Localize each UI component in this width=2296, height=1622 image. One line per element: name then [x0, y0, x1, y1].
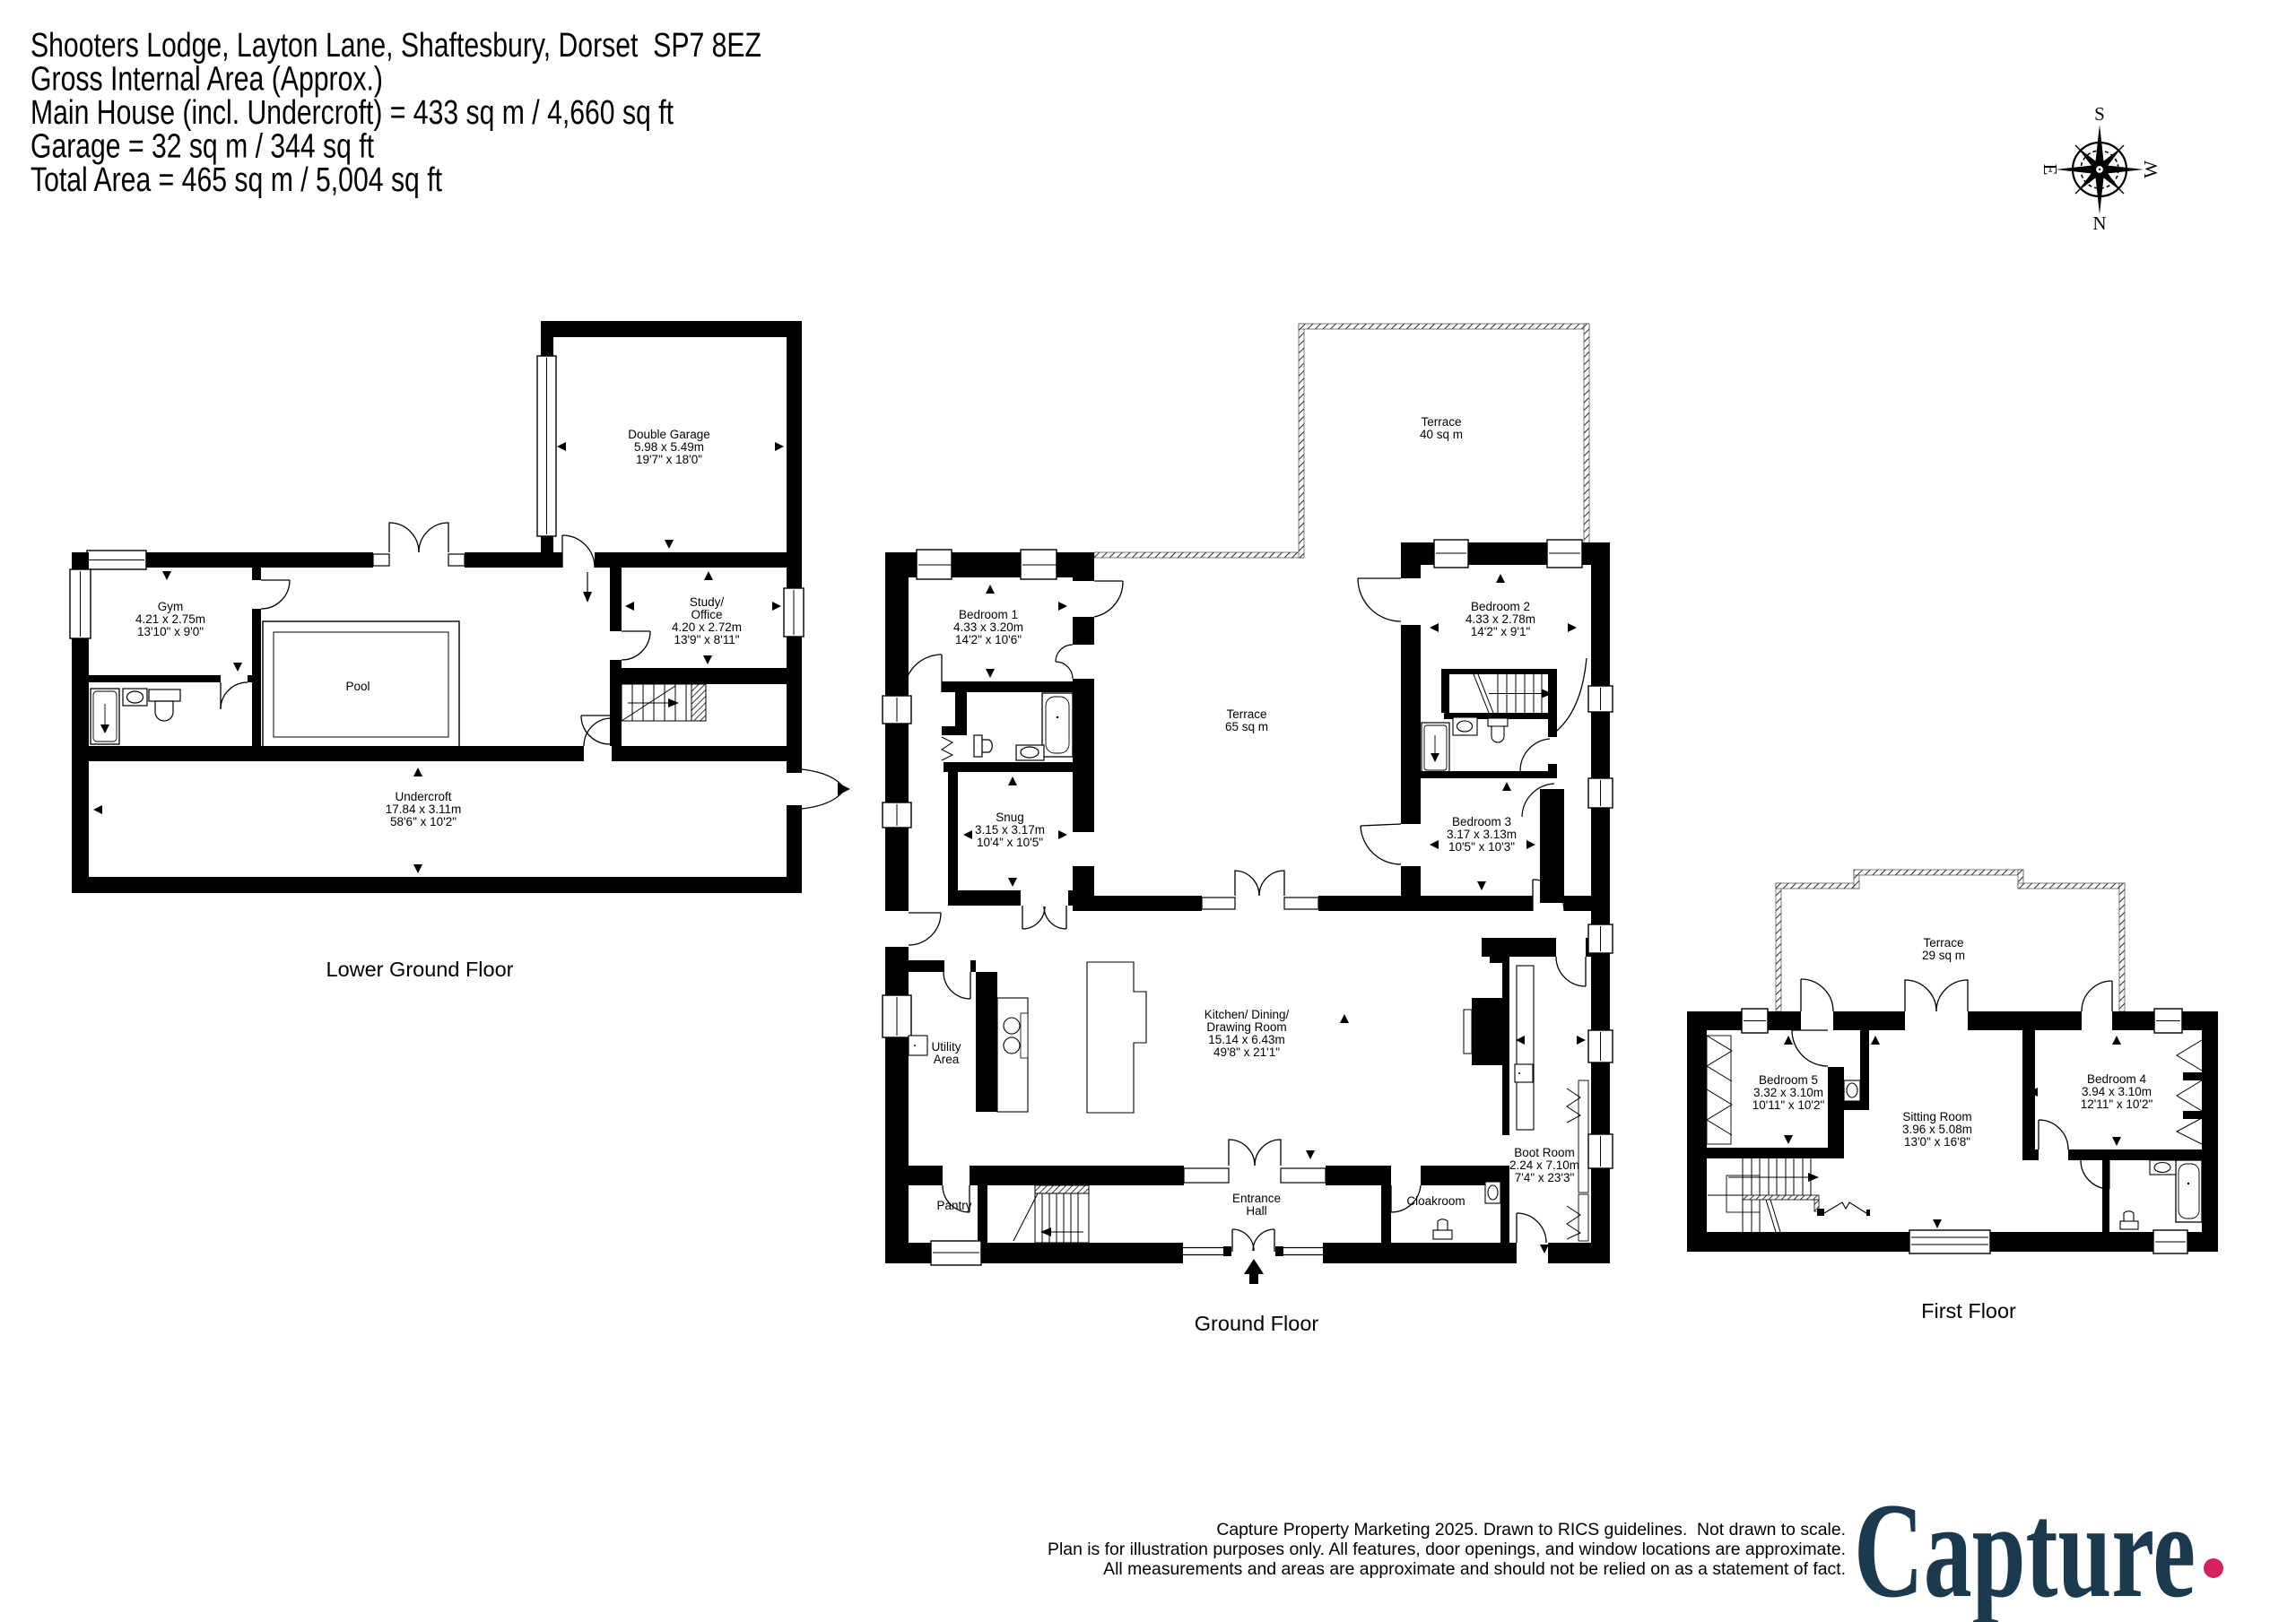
svg-text:14'2" x 10'6": 14'2" x 10'6" — [955, 633, 1022, 646]
svg-text:Capture Property Marketing 202: Capture Property Marketing 2025. Drawn t… — [1216, 1520, 1846, 1540]
svg-text:Drawing Room: Drawing Room — [1206, 1020, 1286, 1034]
svg-text:3.17 x 3.13m: 3.17 x 3.13m — [1447, 828, 1517, 841]
svg-text:Double Garage: Double Garage — [628, 428, 710, 441]
svg-text:Hall: Hall — [1246, 1204, 1266, 1218]
svg-text:13'0" x 16'8": 13'0" x 16'8" — [1904, 1135, 1970, 1149]
svg-text:15.14 x 6.43m: 15.14 x 6.43m — [1208, 1033, 1285, 1046]
svg-text:All measurements and areas are: All measurements and areas are approxima… — [1103, 1559, 1846, 1579]
svg-text:N: N — [2092, 213, 2106, 234]
svg-text:Pool: Pool — [345, 680, 370, 693]
svg-text:Bedroom 4: Bedroom 4 — [2087, 1072, 2147, 1086]
svg-text:3.96 x 5.08m: 3.96 x 5.08m — [1902, 1123, 1972, 1136]
svg-text:Ground Floor: Ground Floor — [1195, 1312, 1319, 1335]
svg-text:Utility: Utility — [932, 1040, 961, 1054]
svg-text:Bedroom 2: Bedroom 2 — [1471, 600, 1530, 613]
svg-text:14'2" x 9'1": 14'2" x 9'1" — [1471, 625, 1531, 638]
svg-text:Sitting Room: Sitting Room — [1902, 1110, 1971, 1123]
svg-text:W: W — [2140, 160, 2161, 178]
svg-text:Lower Ground Floor: Lower Ground Floor — [326, 958, 514, 981]
svg-text:10'11" x 10'2": 10'11" x 10'2" — [1752, 1098, 1825, 1112]
svg-text:Kitchen/ Dining/: Kitchen/ Dining/ — [1205, 1008, 1290, 1021]
svg-text:4.33 x 3.20m: 4.33 x 3.20m — [953, 620, 1023, 634]
svg-text:4.20 x 2.72m: 4.20 x 2.72m — [672, 620, 742, 634]
svg-text:5.98 x 5.49m: 5.98 x 5.49m — [634, 440, 704, 454]
svg-text:Office: Office — [691, 608, 722, 621]
svg-text:Terrace: Terrace — [1421, 415, 1461, 429]
svg-text:Total Area = 465 sq m / 5,004: Total Area = 465 sq m / 5,004 sq ft — [30, 161, 442, 199]
svg-text:Cloakroom: Cloakroom — [1406, 1194, 1465, 1208]
svg-text:Entrance: Entrance — [1232, 1192, 1281, 1205]
svg-text:2.24 x 7.10m: 2.24 x 7.10m — [1509, 1158, 1579, 1172]
svg-text:17.84 x 3.11m: 17.84 x 3.11m — [386, 802, 462, 816]
svg-text:10'5" x 10'3": 10'5" x 10'3" — [1448, 840, 1515, 854]
svg-text:Area: Area — [934, 1053, 960, 1066]
svg-text:Boot Room: Boot Room — [1514, 1146, 1575, 1159]
svg-text:3.94 x 3.10m: 3.94 x 3.10m — [2082, 1085, 2152, 1098]
svg-text:4.21 x 2.75m: 4.21 x 2.75m — [135, 612, 205, 626]
svg-text:Pantry: Pantry — [936, 1199, 971, 1212]
svg-text:Bedroom 3: Bedroom 3 — [1452, 815, 1511, 828]
svg-text:29 sq m: 29 sq m — [1922, 949, 1965, 962]
svg-text:49'8" x 21'1": 49'8" x 21'1" — [1213, 1045, 1280, 1059]
svg-text:First Floor: First Floor — [1921, 1299, 2016, 1323]
svg-text:Plan is for illustration purpo: Plan is for illustration purposes only. … — [1048, 1540, 1846, 1559]
svg-text:13'10" x 9'0": 13'10" x 9'0" — [137, 625, 204, 638]
svg-text:3.32 x 3.10m: 3.32 x 3.10m — [1753, 1086, 1823, 1099]
svg-text:12'11" x 10'2": 12'11" x 10'2" — [2081, 1097, 2153, 1111]
svg-text:13'9" x 8'11": 13'9" x 8'11" — [674, 633, 739, 646]
svg-text:Garage = 32 sq m / 344 sq ft: Garage = 32 sq m / 344 sq ft — [30, 128, 374, 166]
svg-text:65 sq m: 65 sq m — [1225, 720, 1268, 733]
svg-text:58'6" x 10'2": 58'6" x 10'2" — [390, 815, 457, 828]
svg-text:S: S — [2094, 103, 2105, 125]
svg-text:Bedroom 5: Bedroom 5 — [1759, 1073, 1818, 1087]
svg-text:E: E — [2039, 164, 2061, 176]
svg-text:40 sq m: 40 sq m — [1420, 428, 1463, 441]
svg-text:Gym: Gym — [158, 600, 184, 613]
svg-text:Snug: Snug — [996, 811, 1024, 824]
svg-text:Terrace: Terrace — [1226, 707, 1266, 721]
svg-text:10'4" x 10'5": 10'4" x 10'5" — [977, 836, 1043, 849]
svg-text:Capture: Capture — [1854, 1475, 2196, 1622]
svg-text:Shooters Lodge, Layton Lane, S: Shooters Lodge, Layton Lane, Shaftesbury… — [30, 27, 761, 65]
svg-text:3.15 x 3.17m: 3.15 x 3.17m — [975, 823, 1045, 837]
svg-text:4.33 x 2.78m: 4.33 x 2.78m — [1465, 612, 1535, 626]
svg-text:Undercroft: Undercroft — [395, 790, 451, 803]
svg-text:19'7" x 18'0": 19'7" x 18'0" — [636, 453, 702, 466]
svg-text:Main House (incl. Undercroft): Main House (incl. Undercroft) = 433 sq m… — [30, 94, 674, 132]
svg-text:Terrace: Terrace — [1923, 936, 1963, 950]
svg-text:Gross Internal Area (Approx.): Gross Internal Area (Approx.) — [30, 61, 383, 99]
svg-text:Study/: Study/ — [690, 595, 725, 609]
svg-text:Bedroom 1: Bedroom 1 — [959, 608, 1018, 621]
svg-text:7'4" x 23'3": 7'4" x 23'3" — [1515, 1171, 1575, 1184]
